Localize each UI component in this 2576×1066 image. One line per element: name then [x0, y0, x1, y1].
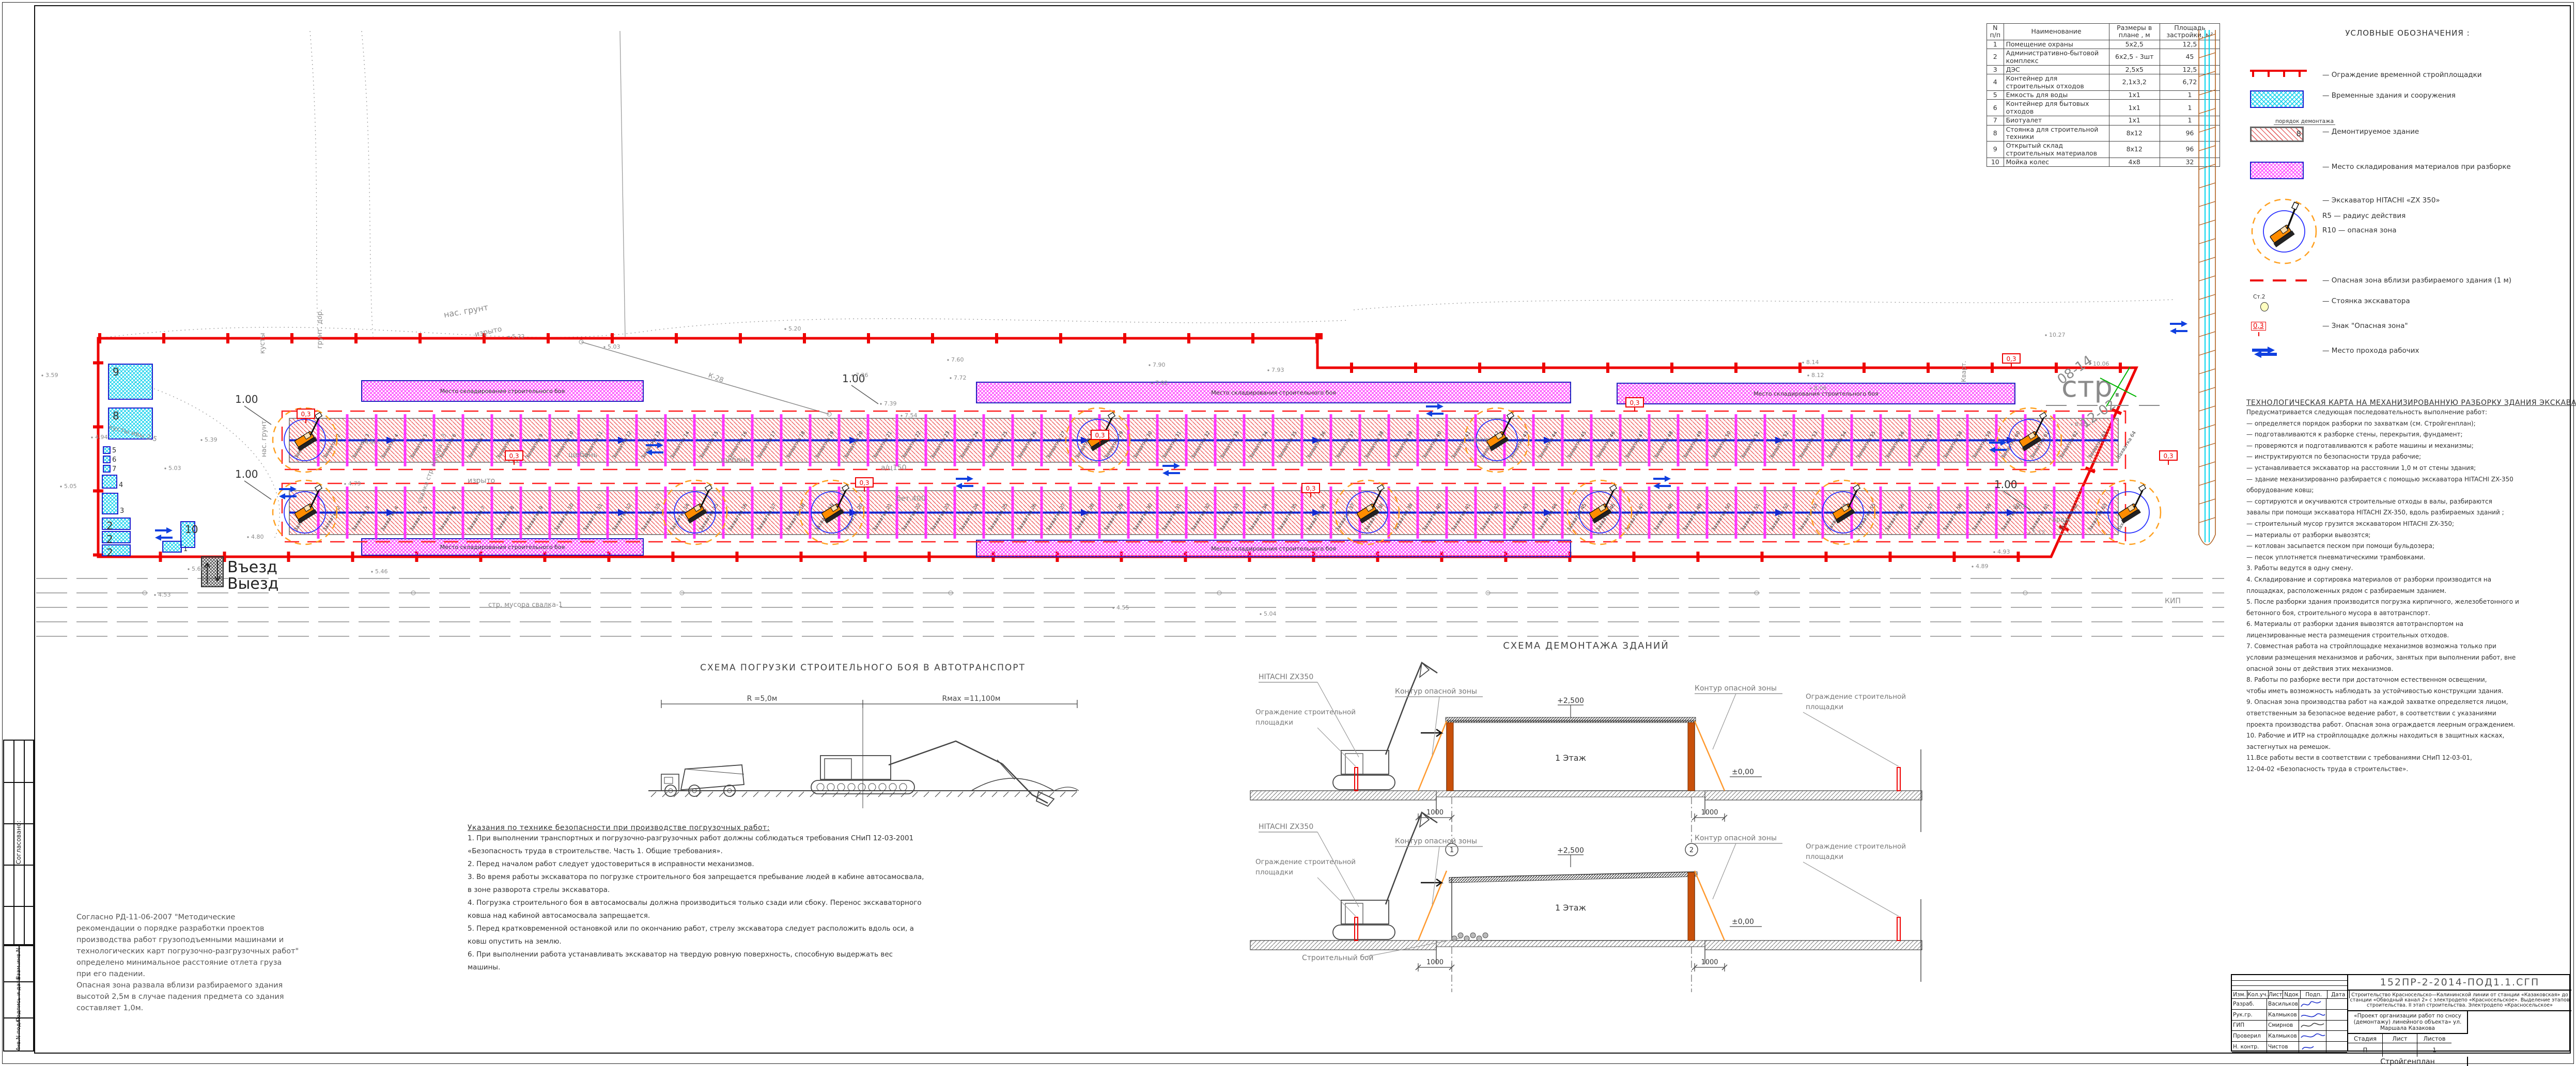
- svg-text:9: 9: [113, 366, 119, 378]
- svg-text:КИП: КИП: [2165, 597, 2181, 605]
- stamp-col-header: Лист: [2269, 991, 2283, 998]
- svg-text:Место складирования строительн: Место складирования строительного боя: [1211, 545, 1336, 552]
- svg-text:8.06: 8.06: [1814, 385, 1827, 391]
- svg-text:Место складирования строительн: Место складирования строительного боя: [440, 388, 565, 395]
- text-line: — проверяются и подготавливаются к работ…: [2246, 441, 2569, 452]
- svg-text:щебень: щебень: [721, 456, 750, 464]
- text-line: бетонного боя, строительного мусора в ав…: [2246, 608, 2569, 619]
- legend-item-label: — Место прохода рабочих: [2322, 347, 2419, 355]
- document-number: 152ПР-2-2014-ПОД1.1.СГП: [2348, 975, 2571, 991]
- regulation-note: Согласно РД-11-06-2007 "Методическиереко…: [76, 912, 366, 1014]
- text-line: — сортируются и окучиваются строительные…: [2246, 496, 2569, 508]
- svg-text:1.00: 1.00: [235, 393, 258, 405]
- text-line: оборудование ковш;: [2246, 485, 2569, 496]
- text-line: 10. Рабочие и ИТР на стройплощадке должн…: [2246, 730, 2569, 742]
- svg-text:Ограждение строительной: Ограждение строительной: [1806, 842, 1906, 851]
- svg-text:4.89: 4.89: [1976, 563, 1989, 570]
- svg-text:Захватка 64: Захватка 64: [2116, 430, 2137, 460]
- svg-text:щебень: щебень: [568, 451, 597, 459]
- text-line: площадках, расположенных рядом с разбира…: [2246, 586, 2569, 597]
- svg-text:2: 2: [106, 546, 113, 559]
- svg-text:кусты: кусты: [259, 333, 267, 354]
- svg-text:Ограждение строительной: Ограждение строительной: [1806, 693, 1906, 701]
- text-line: — инструктируются по безопасности труда …: [2246, 451, 2569, 463]
- text-line: ковша над кабиной автосамосвала запрещае…: [468, 910, 1129, 922]
- signature: [2299, 1021, 2326, 1031]
- stage-value: П: [2348, 1043, 2383, 1057]
- svg-text:0,3: 0,3: [1630, 399, 1639, 406]
- svg-text:4.53: 4.53: [158, 591, 171, 598]
- svg-text:5.22: 5.22: [512, 333, 525, 340]
- text-line: рекомендации о порядке разработки проект…: [76, 923, 366, 934]
- tech-notes-title: ТЕХНОЛОГИЧЕСКАЯ КАРТА НА МЕХАНИЗИРОВАННУ…: [2246, 399, 2569, 407]
- stamp-col-header: Кол.уч.: [2247, 991, 2269, 998]
- project-name: Строительство Красносельско—Калининской …: [2348, 991, 2571, 1011]
- text-line: Предусматривается следующая последовател…: [2246, 407, 2569, 418]
- text-line: — песок уплотняется пневматическими трам…: [2246, 552, 2569, 563]
- text-line: чтобы иметь возможность наблюдать за уст…: [2246, 686, 2569, 697]
- text-line: ответственным за безопасное ведение рабо…: [2246, 708, 2569, 719]
- stamp-role-row: Рук.гр.Калмыков: [2232, 1010, 2347, 1021]
- text-line: 12-04-02 «Безопасность труда в строитель…: [2246, 764, 2569, 775]
- stamp-col-header: Дата: [2327, 991, 2350, 998]
- svg-text:5.03: 5.03: [168, 465, 181, 472]
- text-line: — подготавливаются к разборке стены, пер…: [2246, 429, 2569, 441]
- svg-text:1000: 1000: [1701, 809, 1718, 817]
- text-line: 1. При выполнении транспортных и погрузо…: [468, 832, 1129, 845]
- svg-text:изрыто: изрыто: [468, 477, 495, 485]
- svg-text:4.79: 4.79: [348, 480, 361, 487]
- loading-scheme-title: СХЕМА ПОГРУЗКИ СТРОИТЕЛЬНОГО БОЯ В АВТОТ…: [641, 663, 1085, 673]
- text-line: — определяется порядок разборки по захва…: [2246, 418, 2569, 430]
- svg-text:7.26: 7.26: [856, 372, 868, 379]
- svg-text:1000: 1000: [1426, 809, 1444, 817]
- legend-item-label: — Опасная зона вблизи разбираемого здани…: [2322, 276, 2511, 285]
- stamp-role-row: Н. контр.Чистов: [2232, 1042, 2347, 1053]
- svg-text:2: 2: [1689, 846, 1694, 854]
- svg-text:5.05: 5.05: [64, 483, 77, 490]
- legend-item-label: — Место складирования материалов при раз…: [2322, 163, 2511, 171]
- svg-text:0,3: 0,3: [859, 479, 869, 487]
- sheet-no-value: [2383, 1043, 2417, 1057]
- text-line: 6. Материалы от разборки здания вывозятс…: [2246, 619, 2569, 630]
- text-line: 11.Все работы вести в соответствии с тре…: [2246, 753, 2569, 764]
- text-line: 9. Опасная зона производства работ на ка…: [2246, 697, 2569, 708]
- demolition-scheme-svg: 1 ЭтажHITACHI ZX350Контур опасной зоныКо…: [1240, 651, 1932, 992]
- text-line: 3. Во время работы экскаватора по погруз…: [468, 871, 1129, 884]
- text-line: при его падении.: [76, 968, 366, 980]
- loading-scheme: СХЕМА ПОГРУЗКИ СТРОИТЕЛЬНОГО БОЯ В АВТОТ…: [641, 663, 1085, 818]
- text-line: 2. Перед началом работ следует удостовер…: [468, 858, 1129, 871]
- svg-text:Место складирования строительн: Место складирования строительного боя: [440, 544, 565, 551]
- text-line: 4. Складирование и сортировка материалов…: [2246, 574, 2569, 586]
- svg-text:Выезд: Выезд: [227, 575, 278, 593]
- svg-text:5: 5: [112, 447, 116, 454]
- svg-text:8.14: 8.14: [1806, 359, 1819, 366]
- svg-text:HITACHI ZX350: HITACHI ZX350: [1259, 823, 1313, 831]
- text-line: — материалы от разборки вывозятся;: [2246, 530, 2569, 541]
- svg-text:5.03: 5.03: [608, 343, 620, 350]
- pass-swatch-icon: [2250, 346, 2286, 361]
- object-name: «Проект организации работ по сносу (демо…: [2348, 1011, 2468, 1034]
- svg-text:7.92: 7.92: [1155, 380, 1168, 386]
- text-line: ковш опустить на землю.: [468, 935, 1129, 948]
- text-line: технологических карт погрузочно-разгрузо…: [76, 946, 366, 957]
- svg-text:площадки: площадки: [1255, 718, 1293, 727]
- fence-swatch-icon: [2250, 70, 2307, 80]
- text-line: застегнутых на ремешок.: [2246, 742, 2569, 753]
- park-swatch-icon: Ст.2: [2250, 296, 2281, 313]
- safety-notes: Указания по технике безопасности при про…: [468, 824, 1129, 974]
- stamp-role-row: ГИПСмирнов: [2232, 1021, 2347, 1031]
- svg-text:±0,00: ±0,00: [1732, 768, 1754, 776]
- svg-text:0,3: 0,3: [1095, 432, 1105, 439]
- text-line: 3. Работы ведутся в одну смену.: [2246, 563, 2569, 574]
- svg-text:1 Этаж: 1 Этаж: [1555, 903, 1586, 913]
- svg-text:1: 1: [1450, 846, 1454, 854]
- text-line: 5. Перед кратковременной остановкой или …: [468, 922, 1129, 935]
- drawing-title: Стройгенплан: [2380, 1058, 2434, 1066]
- svg-text:0,3: 0,3: [2006, 355, 2016, 363]
- svg-text:1.00: 1.00: [235, 468, 258, 480]
- svg-text:5.03: 5.03: [2013, 504, 2026, 510]
- site-plan: Место складирования строительного бояМес…: [31, 21, 2237, 673]
- legend-title: УСЛОВНЫЕ ОБОЗНАЧЕНИЯ :: [2245, 28, 2570, 38]
- svg-text:1.00: 1.00: [1994, 478, 2018, 491]
- svg-text:8.65: 8.65: [2075, 421, 2088, 428]
- text-line: лицензированные места размещения строите…: [2246, 630, 2569, 641]
- svg-text:Место складирования строительн: Место складирования строительного боя: [1211, 389, 1336, 396]
- technological-map-notes: ТЕХНОЛОГИЧЕСКАЯ КАРТА НА МЕХАНИЗИРОВАННУ…: [2246, 399, 2569, 775]
- text-line: — устанавливается экскаватор на расстоян…: [2246, 463, 2569, 474]
- svg-text:2: 2: [106, 533, 113, 545]
- svg-text:Rмах =11,100м: Rмах =11,100м: [942, 695, 1001, 703]
- svg-text:4.93: 4.93: [1997, 548, 2010, 555]
- text-line: производства работ грузоподъемными машин…: [76, 934, 366, 946]
- legend-item-label: — Ограждение временной стройплощадки: [2322, 71, 2482, 79]
- svg-text:7.54: 7.54: [905, 412, 918, 419]
- drawing-sheet: Согласовано: Взам.инв.N Подпись и дата И…: [0, 0, 2576, 1066]
- svg-text:5.04: 5.04: [1264, 610, 1277, 617]
- svg-text:стр. мусора свалка-1: стр. мусора свалка-1: [488, 601, 563, 609]
- svg-text:4.55: 4.55: [1116, 604, 1129, 611]
- svg-text:площадки: площадки: [1806, 703, 1843, 711]
- svg-text:5.39: 5.39: [205, 436, 218, 443]
- svg-text:5.46: 5.46: [375, 568, 388, 575]
- text-line: опасной зоны от действия этих механизмов…: [2246, 664, 2569, 675]
- text-line: машины.: [468, 961, 1129, 974]
- text-line: условии размещения механизмов и рабочих,…: [2246, 652, 2569, 664]
- store-swatch-icon: [2250, 162, 2304, 179]
- margin-cell-label: Инв.N подл.: [15, 1018, 22, 1052]
- text-line: — котлован засыпается песком при помощи …: [2246, 541, 2569, 552]
- svg-text:+2,500: +2,500: [1557, 846, 1584, 855]
- legend-item-subline: R10 — опасная зона: [2322, 226, 2396, 234]
- svg-text:10.27: 10.27: [2049, 332, 2066, 338]
- stamp-col-header: Подп.: [2301, 991, 2327, 998]
- svg-text:7: 7: [112, 465, 116, 473]
- svg-text:а/ц150: а/ц150: [881, 464, 907, 472]
- excav-swatch-icon: [2250, 195, 2322, 270]
- svg-text:4.96: 4.96: [365, 439, 378, 446]
- stage-grid: Стадия Лист Листов П 1: [2348, 1034, 2451, 1057]
- svg-text:10.06: 10.06: [2093, 360, 2109, 367]
- text-line: 6. При выполнении работа устанавливать э…: [468, 948, 1129, 961]
- text-line: Опасная зона развала вблизи разбираемого…: [76, 980, 366, 991]
- text-line: определено минимальное расстояние отлета…: [76, 957, 366, 968]
- svg-text:5.12: 5.12: [2032, 529, 2045, 536]
- svg-text:Контур опасной зоны: Контур опасной зоны: [1695, 834, 1777, 842]
- svg-text:Ограждение строительной: Ограждение строительной: [1255, 708, 1356, 716]
- svg-text:6: 6: [112, 456, 116, 464]
- text-line: 4. Погрузка строительного боя в автосамо…: [468, 897, 1129, 910]
- svg-text:4: 4: [119, 481, 123, 489]
- stage-label: Стадия: [2348, 1034, 2383, 1043]
- legend-item-label: — Стоянка экскаватора: [2322, 297, 2410, 305]
- svg-text:К-28: К-28: [707, 372, 725, 385]
- legend-item-label: — Временные здания и сооружения: [2322, 91, 2456, 100]
- svg-text:0,3: 0,3: [301, 411, 311, 418]
- signature: [2299, 1010, 2326, 1020]
- legend-item-label: — Экскаватор HITACHI «ZX 350»: [2322, 196, 2440, 205]
- svg-text:8: 8: [113, 410, 119, 422]
- svg-text:площадки: площадки: [1806, 853, 1843, 861]
- svg-text:±0,00: ±0,00: [1732, 918, 1754, 926]
- demo-order-label: порядок демонтажа: [2274, 118, 2335, 125]
- svg-text:5.68: 5.68: [192, 566, 205, 572]
- svg-text:8.12: 8.12: [1811, 372, 1824, 379]
- text-line: завалы при помощи экскаватора HITACHI ZX…: [2246, 507, 2569, 519]
- temp-swatch-icon: [2250, 90, 2304, 108]
- svg-text:0,3: 0,3: [1306, 485, 1315, 492]
- svg-text:изрыто: изрыто: [474, 325, 503, 339]
- safety-notes-title: Указания по технике безопасности при про…: [468, 824, 1129, 832]
- demolition-scheme-title: СХЕМА ДЕМОНТАЖА ЗДАНИЙ: [1240, 640, 1932, 651]
- demo-swatch-icon: 8: [2250, 127, 2304, 142]
- text-line: составляет 1,0м.: [76, 1002, 366, 1014]
- svg-text:1000: 1000: [1701, 959, 1718, 966]
- svg-text:4.80: 4.80: [251, 534, 264, 540]
- sheets-label: Листов: [2417, 1034, 2451, 1043]
- svg-text:Контур опасной зоны: Контур опасной зоны: [1395, 687, 1477, 696]
- sheet-label: Лист: [2383, 1034, 2417, 1043]
- svg-text:Контур опасной зоны: Контур опасной зоны: [1695, 684, 1777, 693]
- legend: УСЛОВНЫЕ ОБОЗНАЧЕНИЯ : — Ограждение врем…: [2245, 28, 2570, 38]
- loading-scheme-svg: R =5,0мRмах =11,100м: [641, 673, 1085, 812]
- site-plan-svg: Место складирования строительного бояМес…: [31, 21, 2237, 671]
- svg-text:7.60: 7.60: [951, 356, 964, 363]
- text-line: 5. После разборки здания производится по…: [2246, 597, 2569, 608]
- svg-text:10: 10: [185, 523, 198, 536]
- svg-text:гараж: гараж: [1467, 436, 1489, 444]
- text-line: проекта производства работ. Опасная зона…: [2246, 719, 2569, 731]
- svg-text:Строительный бой: Строительный бой: [1302, 954, 1374, 962]
- signature: [2299, 1042, 2326, 1052]
- danger-swatch-icon: [2250, 275, 2307, 281]
- svg-text:3: 3: [120, 507, 124, 515]
- demolition-scheme: СХЕМА ДЕМОНТАЖА ЗДАНИЙ 1 ЭтажHITACHI ZX3…: [1240, 640, 1932, 1002]
- svg-text:5.20: 5.20: [788, 325, 801, 332]
- text-line: высотой 2,5м в случае падения предмета с…: [76, 991, 366, 1002]
- margin-agreed-block: Согласовано:: [3, 740, 34, 945]
- svg-text:Ограждение строительной: Ограждение строительной: [1255, 858, 1356, 866]
- svg-text:3.59: 3.59: [45, 372, 58, 379]
- svg-text:нас. грунт: нас. грунт: [443, 302, 489, 320]
- title-block-signatures: Изм.Кол.уч.ЛистNдокПодп.Дата Разраб.Васи…: [2232, 975, 2348, 1051]
- svg-text:Въезд: Въезд: [227, 558, 277, 576]
- svg-text:HITACHI ZX350: HITACHI ZX350: [1259, 673, 1313, 681]
- margin-cell-label: Взам.инв.N: [15, 948, 22, 980]
- svg-text:0,3: 0,3: [509, 452, 519, 460]
- svg-text:гараж: гараж: [2049, 516, 2071, 524]
- svg-text:1000: 1000: [1426, 959, 1444, 966]
- text-line: в зоне разворота стрелы экскаватора.: [468, 884, 1129, 897]
- svg-text:грунт. дор.: грунт. дор.: [316, 309, 324, 349]
- svg-text:7.93: 7.93: [1271, 367, 1284, 373]
- margin-inventory-block: Взам.инв.N Подпись и дата Инв.N подл.: [3, 945, 34, 1052]
- stamp-role-row: Разраб.Васильков: [2232, 999, 2347, 1010]
- margin-agreed-label: Согласовано:: [15, 821, 22, 865]
- text-line: — строительный мусор грузится экскаватор…: [2246, 519, 2569, 530]
- svg-text:7.72: 7.72: [954, 374, 967, 381]
- legend-item-label: — Демонтируемое здание: [2322, 128, 2419, 136]
- svg-text:4.94: 4.94: [95, 434, 108, 441]
- text-line: «Безопасность труда в строительстве. Час…: [468, 845, 1129, 858]
- legend-item-subline: R5 — радиус действия: [2322, 212, 2406, 220]
- svg-text:нас. грунт: нас. грунт: [260, 420, 268, 457]
- sign-swatch-icon: 0,3: [2250, 321, 2281, 338]
- svg-text:7.90: 7.90: [1153, 362, 1166, 368]
- text-line: 7. Совместная работа на стройплощадке ме…: [2246, 641, 2569, 652]
- svg-text:R =5,0м: R =5,0м: [747, 695, 778, 703]
- drawing-name: Стройгенплан М1: 500: [2348, 1057, 2468, 1066]
- text-line: — здание механизированно разбирается с п…: [2246, 474, 2569, 485]
- stamp-role-row: ПроверилКалмыков: [2232, 1031, 2347, 1042]
- signature: [2299, 999, 2326, 1009]
- signature: [2299, 1031, 2326, 1041]
- svg-text:2: 2: [106, 520, 113, 532]
- stamp-col-header: Изм.: [2232, 991, 2247, 998]
- svg-text:0,3: 0,3: [2163, 452, 2173, 460]
- text-line: 8. Работы по разборке вести при достаточ…: [2246, 675, 2569, 686]
- svg-text:+2,500: +2,500: [1557, 697, 1584, 705]
- svg-text:7.39: 7.39: [884, 400, 897, 407]
- stamp-col-header: Nдок: [2283, 991, 2301, 998]
- legend-item-label: — Знак "Опасная зона": [2322, 322, 2408, 330]
- svg-text:Контур опасной зоны: Контур опасной зоны: [1395, 837, 1477, 845]
- margin-cell-label: Подпись и дата: [15, 977, 22, 1022]
- title-block: Изм.Кол.уч.ЛистNдокПодп.Дата Разраб.Васи…: [2231, 974, 2570, 1052]
- sheets-value: 1: [2417, 1043, 2451, 1057]
- svg-text:площадки: площадки: [1255, 868, 1293, 876]
- svg-text:Кварт.: Кварт.: [1960, 361, 1967, 382]
- svg-text:1 Этаж: 1 Этаж: [1555, 753, 1586, 763]
- svg-text:бет.400: бет.400: [896, 495, 926, 503]
- text-line: Согласно РД-11-06-2007 "Методические: [76, 912, 366, 923]
